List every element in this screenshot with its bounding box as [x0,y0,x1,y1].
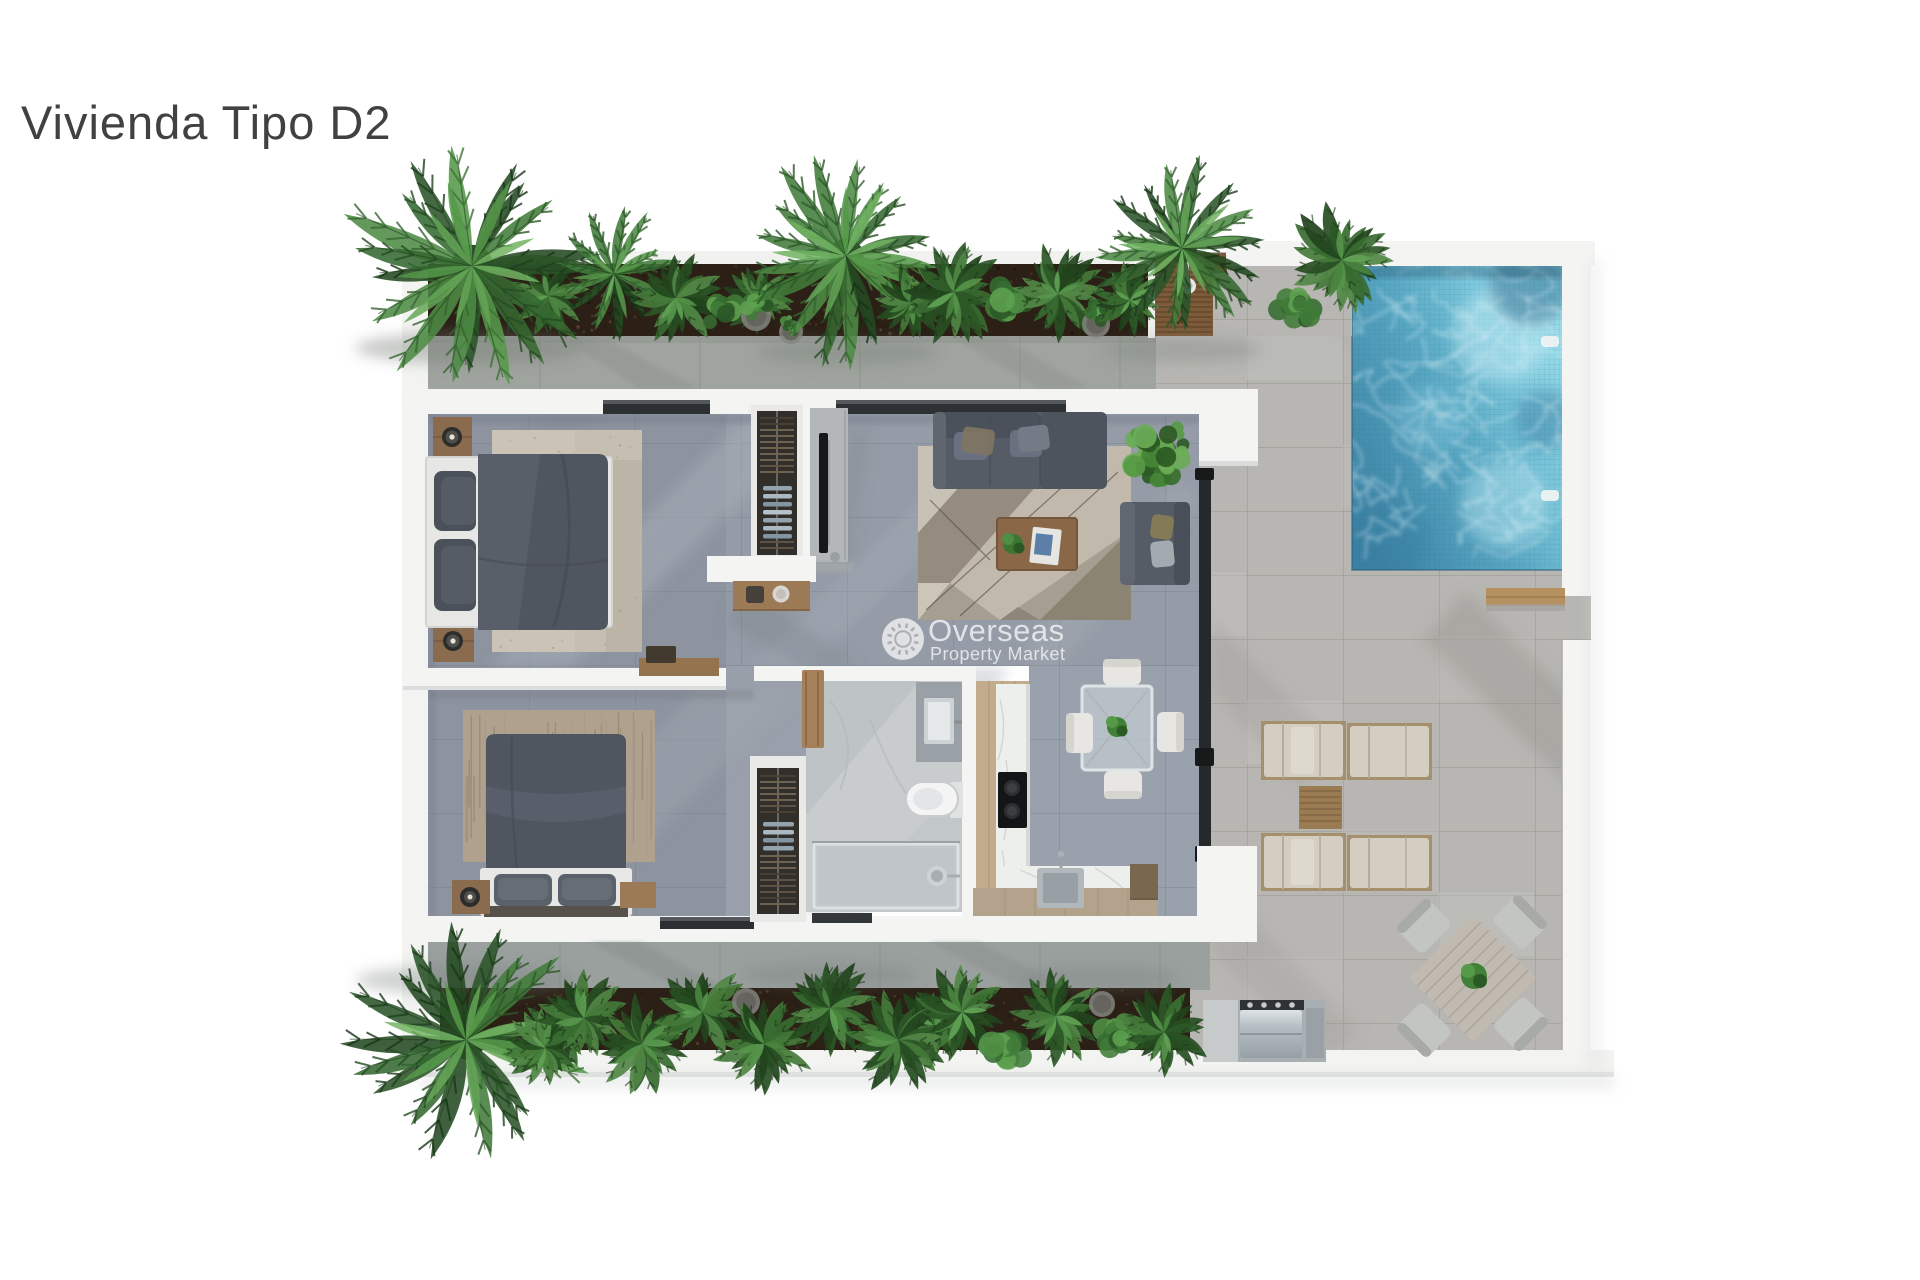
svg-text:Property Market: Property Market [930,644,1066,664]
svg-text:Overseas: Overseas [928,613,1065,648]
